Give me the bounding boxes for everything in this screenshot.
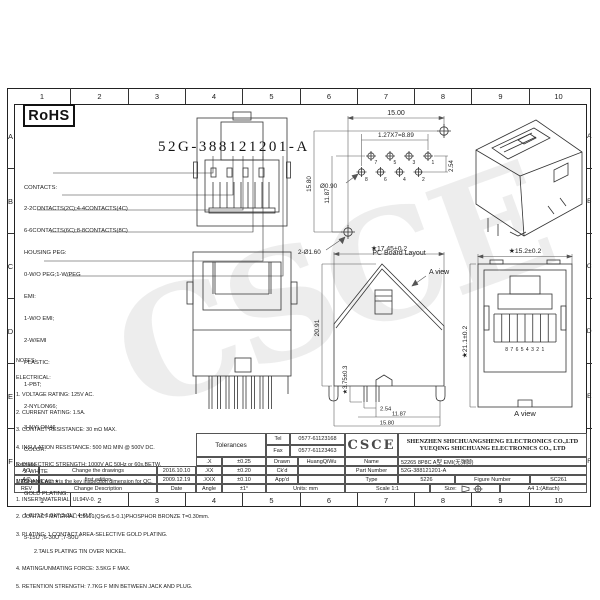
pcb-dim-pitch: 1.27X7=8.89	[378, 132, 414, 139]
note-line: 2. CURRENT RATING: 1.5A.	[16, 411, 209, 417]
front-view	[193, 110, 293, 235]
aview-dim-height: ★21.1±0.2	[461, 326, 469, 359]
pcb-dim-v1: 11.87	[324, 188, 331, 204]
note-line: 5. RETENTION STRENGTH: 7.7KG F MIN BETWE…	[16, 585, 209, 591]
note-line: 3. PLATING: 1.CONTACT AREA-SELECTIVE GOL…	[16, 533, 209, 539]
note-line: 2.TAILS PLATING TIN OVER NICKEL.	[16, 550, 209, 556]
aview-pin-numbers: 8 7 6 5 4 3 2 1	[505, 347, 544, 353]
side-view: ★17.45±0.2 20.91 ★3.75±0.3 2.54 11.87 15…	[310, 240, 462, 430]
note-line: 3. CONTACT RESISTANCE: 30 mΩ MAX.	[16, 428, 209, 434]
front-view-drawing	[194, 112, 291, 226]
pcb-dim-width: 15.00	[387, 110, 405, 117]
note-line: ELECTRICAL:	[16, 376, 209, 382]
side-dim-height: 20.91	[314, 319, 321, 336]
pcb-pin-label: 5	[394, 160, 397, 166]
third-angle-projection-icon	[460, 485, 486, 493]
aview-drawing	[478, 260, 572, 407]
pcb-holes	[341, 124, 451, 239]
side-dim-width: ★17.45±0.2	[371, 245, 408, 253]
a-view: ★15.2±0.2 ★21.1±0.2 8 7 6 5 4 3 2 1 A vi…	[460, 242, 588, 420]
isometric-view	[448, 106, 588, 241]
pcb-dim-hole: Ø0.90	[320, 183, 338, 190]
pcb-layout-view: 15.00 1.27X7=8.89 2.54 11.87 15.80 Ø0.90…	[296, 104, 464, 259]
pcb-pin-label: 8	[365, 177, 368, 183]
aview-dimension-lines	[470, 254, 572, 407]
isometric-drawing	[476, 120, 582, 236]
remark-title: Remark:	[16, 463, 153, 469]
drawing-sheet: CSCE 1 2 3 4 5 6 7 8 9 10 1 2 3 4 5 6 7 …	[0, 0, 600, 600]
pcb-pin-label: 2	[422, 177, 425, 183]
pcb-pin-label: 7	[375, 160, 378, 166]
pcb-pin-label: 4	[403, 177, 406, 183]
pcb-pin-label: 6	[384, 177, 387, 183]
remark-block: Remark: 1.The mark with★is the key inspe…	[16, 451, 153, 497]
note-line: 4. MATING/UNMATING FORCE: 3.5KG F MAX.	[16, 567, 209, 573]
aview-dim-width: ★15.2±0.2	[509, 247, 542, 255]
note-line: NOTES:	[16, 359, 209, 365]
side-dim-b1: 2.54	[380, 407, 392, 413]
pcb-dim-v2: 15.80	[306, 176, 313, 192]
note-line: 2. CONTACT MATERIAL: C5191(QSn6.5-0.1)PH…	[16, 515, 209, 521]
pcb-pin-label: 1	[432, 160, 435, 166]
note-line: 1. INSERT MATERIAL: UL94V-0.	[16, 498, 209, 504]
aview-label: A view	[514, 409, 536, 418]
side-dim-standoff: ★3.75±0.3	[342, 365, 349, 394]
side-dimension-lines	[322, 252, 444, 426]
side-dim-b3: 15.80	[380, 421, 395, 427]
pcb-pin-label: 3	[413, 160, 416, 166]
note-line: 1. VOLTAGE RATING: 125V AC.	[16, 393, 209, 399]
side-a-view-label: A view	[429, 269, 450, 276]
side-dim-b2: 11.87	[392, 412, 406, 418]
remark-line: 1.The mark with★is the key inspection di…	[16, 480, 153, 486]
